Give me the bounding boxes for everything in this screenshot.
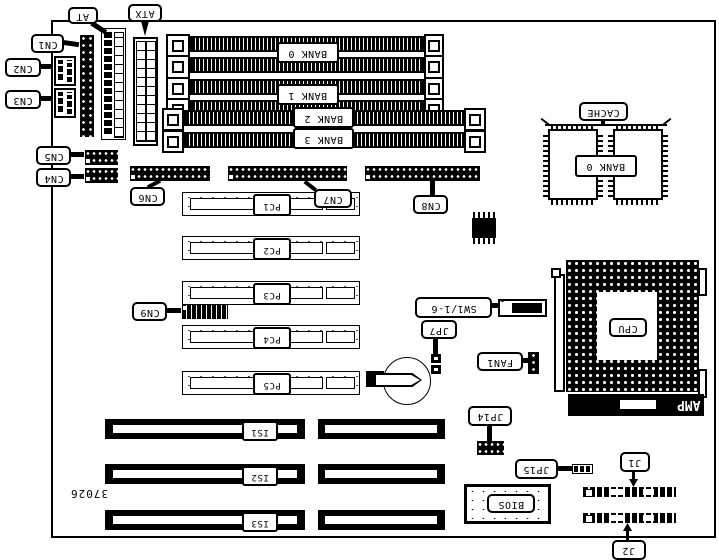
pin1-marker: [366, 175, 370, 179]
pin1-marker: [585, 489, 593, 497]
cache-chip-pins: [663, 132, 668, 197]
at-power-connector: [101, 28, 126, 140]
callout-cn4-tail: [69, 174, 84, 179]
callout-jp7-tail: [433, 337, 438, 354]
is1-label: IS1: [242, 421, 278, 441]
pci-slot-key-short: [326, 331, 355, 343]
atx-power-connector: [133, 37, 158, 146]
pci-slot-key-short: [326, 377, 355, 389]
header-gap: [643, 515, 654, 521]
jumper-pin: [434, 357, 438, 360]
amp-brand-label: AMP: [677, 397, 700, 412]
callout-cn8-tail: [430, 181, 435, 195]
simm-latch-icon: [172, 61, 184, 73]
callout-cn8: CN8: [413, 195, 448, 214]
simm-latch-icon: [428, 83, 440, 95]
dimm-latch-icon: [167, 136, 179, 148]
callout-at: AT: [68, 7, 98, 24]
jp14-header: [477, 441, 504, 455]
cn8-header: [365, 166, 480, 181]
callout-cn5: CN5: [36, 146, 71, 165]
pc3-label: PC3: [253, 283, 291, 305]
socket-bracket: [698, 268, 707, 296]
callout-cn6: CN6: [130, 187, 165, 206]
cn2-pins: [58, 60, 63, 82]
cn2-connector: [54, 56, 76, 86]
isa-slot-key: [325, 470, 437, 478]
cache-chip-pins: [551, 200, 595, 205]
atx-pin-column: [136, 41, 146, 142]
fan1-header: [528, 352, 539, 374]
is2-label: IS2: [242, 466, 278, 486]
simm-latch-left: [166, 55, 190, 79]
board-part-number: 37026: [70, 487, 108, 500]
dimm-latch-left: [162, 108, 184, 131]
callout-fan1: FAN1: [477, 352, 523, 371]
bank2-label: BANK 2: [293, 107, 354, 128]
cache-chip-pins: [616, 200, 660, 205]
callout-jp15-tail: [556, 466, 572, 471]
simm-latch-icon: [428, 40, 440, 52]
isa-slot-short: [318, 419, 445, 439]
callout-cache: CACHE: [579, 102, 628, 121]
zif-lever-notch: [551, 268, 561, 278]
dimm-latch-icon: [469, 136, 481, 148]
dimm-latch-right: [464, 130, 486, 153]
cn3-pins: [58, 92, 63, 114]
cn4-header: [85, 168, 118, 183]
dip-pin1-dot: [501, 299, 504, 302]
header-gap: [643, 489, 654, 495]
cn3-connector: [54, 88, 76, 118]
jp7-jumper-pad: [431, 354, 441, 363]
isa-slot-short: [318, 510, 445, 530]
cache-bank0-label: BANK 0: [575, 155, 637, 177]
is3-label: IS3: [242, 512, 278, 532]
small-chip-pins: [473, 238, 495, 244]
simm-latch-icon: [172, 40, 184, 52]
bank1-label: BANK 1: [277, 84, 339, 105]
pc5-label: PC5: [253, 373, 291, 395]
pin1-marker: [131, 175, 135, 179]
j1-header: [583, 487, 676, 497]
pin1-marker: [585, 515, 593, 523]
simm-latch-right: [424, 55, 444, 79]
callout-jp7: JP7: [421, 320, 457, 339]
simm-latch-icon: [428, 61, 440, 73]
zif-lever: [554, 274, 565, 392]
cn2-pins: [67, 60, 72, 82]
callout-cn5-tail: [69, 152, 84, 157]
pc1-label: PC1: [253, 194, 291, 216]
cn1-header: [80, 35, 94, 137]
callout-jp14-tail: [487, 424, 492, 441]
cn5-header: [85, 150, 118, 165]
callout-jp14: JP14: [468, 406, 512, 426]
cn9-header: [182, 305, 228, 319]
callout-jp15: JP15: [515, 459, 558, 479]
bank0-label: BANK 0: [277, 42, 339, 63]
callout-cpu: CPU: [609, 318, 647, 337]
dip-switch-body: [512, 303, 542, 313]
bios-label: BIOS: [487, 494, 535, 513]
dimm-latch-left: [162, 130, 184, 153]
jp15-jumper: [572, 464, 593, 474]
cache-brace: [545, 124, 667, 126]
jp7-jumper-pad: [431, 365, 441, 374]
at-pin-column: [114, 32, 124, 138]
bank3-label: BANK 3: [293, 128, 354, 149]
pin1-marker: [229, 175, 233, 179]
atx-pin-column: [146, 41, 156, 142]
header-gap: [611, 515, 624, 521]
jumper-pin: [434, 368, 438, 371]
callout-cn3-tail: [39, 96, 53, 101]
cn7-header: [228, 166, 347, 181]
amp-socket-base: AMP: [568, 394, 704, 416]
pci-slot-key-short: [326, 287, 355, 299]
battery-clip-inner: [376, 375, 420, 385]
callout-cn2: CN2: [5, 58, 41, 77]
pin1-marker: [86, 159, 90, 163]
dimm-latch-icon: [469, 114, 481, 126]
socket-base-slot: [620, 400, 656, 409]
callout-cn2-tail: [39, 64, 53, 69]
motherboard-diagram: BANK 0 BANK 1 BANK 2 BANK 3 PC1 PC2 PC3: [0, 0, 719, 560]
jumper-pins: [574, 466, 591, 472]
sw1-dip-switch: [498, 299, 547, 317]
callout-j2: J2: [612, 540, 646, 560]
isa-slot-key: [325, 516, 437, 524]
callout-cn9-tail: [165, 308, 181, 313]
dimm-latch-right: [464, 108, 486, 131]
callout-j2-stem: [626, 530, 629, 540]
small-chip: [472, 218, 496, 238]
callout-j1: J1: [620, 452, 650, 472]
pc2-label: PC2: [253, 238, 291, 260]
cn3-pins: [67, 92, 72, 114]
callout-cn7: CN7: [314, 189, 352, 208]
pin1-marker: [86, 177, 90, 181]
at-pin-column: [104, 32, 112, 136]
callout-cn1: CN1: [31, 34, 64, 53]
j2-header: [583, 513, 676, 523]
header-gap: [611, 489, 624, 495]
pci-slot-key-short: [326, 242, 355, 254]
isa-slot-short: [318, 464, 445, 484]
dimm-latch-icon: [167, 114, 179, 126]
isa-slot-key: [325, 425, 437, 433]
pin1-marker: [183, 306, 187, 310]
simm-latch-icon: [172, 83, 184, 95]
callout-sw1: SW1/1-6: [415, 297, 492, 318]
cn6-header: [130, 166, 210, 181]
callout-cn3: CN3: [5, 90, 41, 109]
pc4-label: PC4: [253, 327, 291, 349]
callout-atx: ATX: [128, 4, 162, 22]
callout-cn4: CN4: [36, 168, 71, 187]
callout-cn9: CN9: [132, 302, 167, 321]
